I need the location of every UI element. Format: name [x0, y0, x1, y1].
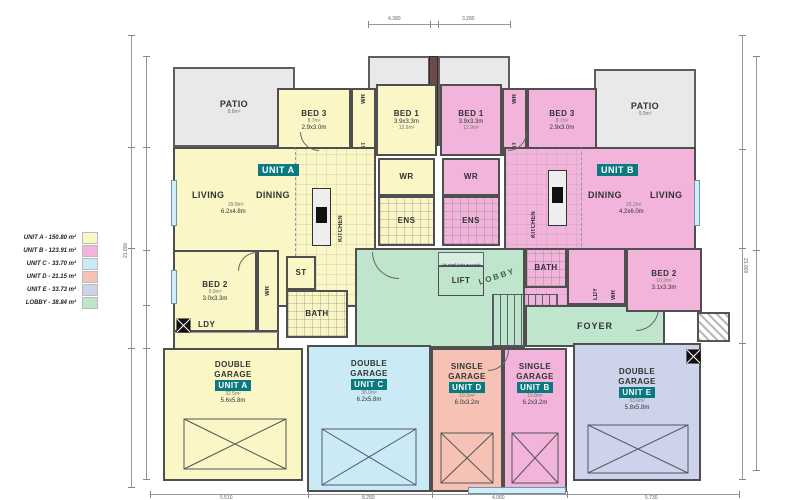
room-label: WR [464, 172, 478, 181]
cooktop-icon [316, 207, 327, 223]
room-label: BED 1 [458, 109, 484, 118]
room-label: BED 2 [202, 280, 228, 289]
foyer-label: FOYER [577, 321, 613, 331]
legend-swatch [82, 284, 98, 296]
dim-label: 3.280 [462, 16, 475, 22]
legend-row: UNIT D - 21.15 m² [14, 271, 98, 283]
bed1-unit-b: BED 1 3.9x3.3m 12.9m² [440, 84, 502, 156]
legend-swatch [82, 297, 98, 309]
room-label: ENS [398, 216, 416, 225]
legend-swatch [82, 232, 98, 244]
room-dim: 2.9x3.0m [302, 125, 327, 131]
room-label: PATIO [220, 99, 248, 109]
garage-area: 36.0m² [361, 391, 377, 396]
wr-unit-a: WR [378, 158, 435, 196]
room-area: 9.0m² [639, 112, 652, 117]
garage-label: SINGLE [519, 362, 551, 371]
dim-label: 21.800 [742, 258, 748, 273]
room-label: BED 1 [394, 109, 420, 118]
legend-label: UNIT B - 123.91 m² [14, 248, 76, 254]
garage-door-d [440, 432, 494, 484]
living-label-b: LIVING [650, 190, 682, 200]
dim-label: 21.800 [123, 243, 129, 258]
ens-unit-b: ENS [442, 196, 500, 246]
garage-label: DOUBLE [351, 359, 387, 368]
dim-line-top [368, 24, 510, 25]
window [171, 180, 177, 226]
room-area: 29.8m² [228, 203, 244, 208]
room-label: ENS [462, 216, 480, 225]
dim-label: 5.510 [220, 495, 233, 500]
garage-door-b [511, 432, 559, 484]
room-area: 8.7m² [308, 119, 321, 124]
room-label: WR [399, 172, 413, 181]
room-area: 9.9m² [209, 290, 222, 295]
garage-label: DOUBLE [619, 367, 655, 376]
room-area: 12.9m² [463, 126, 479, 131]
dim-label: 8.280 [362, 495, 375, 500]
room-dim: 3.1x3.3m [652, 285, 677, 291]
legend-label: UNIT E - 33.73 m² [14, 287, 76, 293]
window [468, 487, 566, 494]
entry-ramp [697, 312, 730, 342]
garage-area: 19.8m² [527, 394, 543, 399]
dim-label: 5.730 [645, 495, 658, 500]
room-label: PATIO [631, 101, 659, 111]
dim-label: 4.060 [492, 495, 505, 500]
garage-label: DOUBLE [215, 360, 251, 369]
dining-label-a: DINING [256, 190, 290, 200]
garage-dim: 5.8x5.8m [625, 405, 650, 411]
legend-swatch [82, 271, 98, 283]
unit-b-garage-badge: UNIT B [517, 382, 553, 393]
lift: LIFT [438, 266, 484, 296]
floor-plan: UNIT A - 150.80 m² UNIT B - 123.91 m² UN… [0, 0, 800, 500]
wr-label: WR [361, 94, 367, 104]
unit-a-garage-badge: UNIT A [215, 380, 250, 391]
room-dim: 2.9x3.0m [550, 125, 575, 131]
room-area: 8.7m² [556, 119, 569, 124]
room-area: 10.2m² [656, 279, 672, 284]
wr-vert-label-b: WR [611, 258, 617, 300]
garage-door-c [321, 428, 417, 486]
legend-row: UNIT E - 33.73 m² [14, 284, 98, 296]
garage-area: 33.6m² [629, 399, 645, 404]
legend-row: UNIT B - 123.91 m² [14, 245, 98, 257]
garage-area: 19.2m² [459, 394, 475, 399]
legend-label: LOBBY - 38.84 m² [14, 300, 76, 306]
ldy-vert-label-b: LDY [593, 258, 599, 300]
lift-note: Lift shaft light acoustic Passenger [438, 252, 484, 266]
legend-row: UNIT C - 33.70 m² [14, 258, 98, 270]
dim-line-left [131, 35, 132, 488]
legend-swatch [82, 258, 98, 270]
room-area: 25.2m² [626, 203, 642, 208]
room-area: 12.9m² [399, 126, 415, 131]
ldy-label-a: LDY [198, 320, 215, 329]
dim-line-left-2 [146, 56, 147, 480]
legend-label: UNIT D - 21.15 m² [14, 274, 76, 280]
bed2-unit-b: BED 2 10.2m² 3.1x3.3m [626, 248, 702, 312]
ens-unit-a: ENS [378, 196, 435, 246]
wr-label: WR [265, 286, 271, 296]
bed1-unit-a: BED 1 3.9x3.3m 12.9m² [376, 84, 437, 156]
unit-c-garage-badge: UNIT C [351, 379, 387, 390]
garage-area: 32.5m² [225, 392, 241, 397]
wr-st-strip-a: WR ST [351, 88, 376, 156]
room-dim: 4.2x6.0m [619, 209, 644, 215]
room-label: ST [295, 268, 306, 277]
garage-label: GARAGE [516, 372, 554, 381]
living-label-a: LIVING [192, 190, 224, 200]
bed3-unit-b: BED 3 8.7m² 2.9x3.0m [527, 88, 597, 152]
garage-dim: 6.0x3.2m [455, 400, 480, 406]
legend-row: UNIT A - 150.80 m² [14, 232, 98, 244]
room-label: BED 3 [301, 109, 327, 118]
legend-label: UNIT A - 150.80 m² [14, 235, 76, 241]
garage-label: SINGLE [451, 362, 483, 371]
wr-vert-unit-a: WR [257, 250, 279, 332]
patio-right: PATIO 9.0m² [594, 69, 696, 149]
unit-d-garage-badge: UNIT D [449, 382, 485, 393]
garage-label: GARAGE [350, 369, 388, 378]
unit-b-badge: UNIT B [597, 164, 638, 176]
meter-box-icon [176, 318, 191, 333]
room-label: BED 3 [549, 109, 575, 118]
room-dim: 6.2x4.8m [221, 209, 246, 215]
lift-label: LIFT [452, 276, 470, 285]
dim-line-right-2 [756, 56, 757, 470]
window [171, 270, 177, 304]
meter-box-icon [686, 349, 701, 364]
room-label: BED 2 [651, 269, 677, 278]
dim-label: 4.380 [388, 16, 401, 22]
wr-label: WR [512, 94, 518, 104]
bath-unit-a: BATH [286, 290, 348, 338]
cooktop-icon [552, 187, 563, 203]
room-label: BATH [534, 263, 557, 272]
wr-unit-b: WR [442, 158, 500, 196]
unit-a-badge: UNIT A [258, 164, 299, 176]
garage-dim: 6.2x5.8m [357, 397, 382, 403]
window [694, 180, 700, 226]
room-dim: 3.0x3.3m [203, 296, 228, 302]
garage-door-a [183, 418, 287, 470]
garage-dim: 6.2x3.2m [523, 400, 548, 406]
unit-e-garage-badge: UNIT E [619, 387, 654, 398]
garage-dim: 5.6x5.8m [221, 398, 246, 404]
garage-label: GARAGE [618, 377, 656, 386]
kitchen-label-b: KITCHEN [531, 178, 537, 238]
kitchen-label-a: KITCHEN [338, 182, 344, 242]
garage-door-e [587, 424, 689, 474]
room-area: 8.8m² [228, 110, 241, 115]
garage-label: GARAGE [214, 370, 252, 379]
kitchen-island-a [312, 188, 331, 246]
legend-swatch [82, 245, 98, 257]
legend-row: LOBBY - 38.84 m² [14, 297, 98, 309]
room-label: BATH [305, 309, 328, 318]
bath-unit-b: BATH [525, 248, 567, 288]
garage-label: GARAGE [448, 372, 486, 381]
legend-label: UNIT C - 33.70 m² [14, 261, 76, 267]
kitchen-island-b [548, 170, 567, 226]
st-unit-a: ST [286, 256, 316, 290]
dining-label-b: DINING [588, 190, 622, 200]
